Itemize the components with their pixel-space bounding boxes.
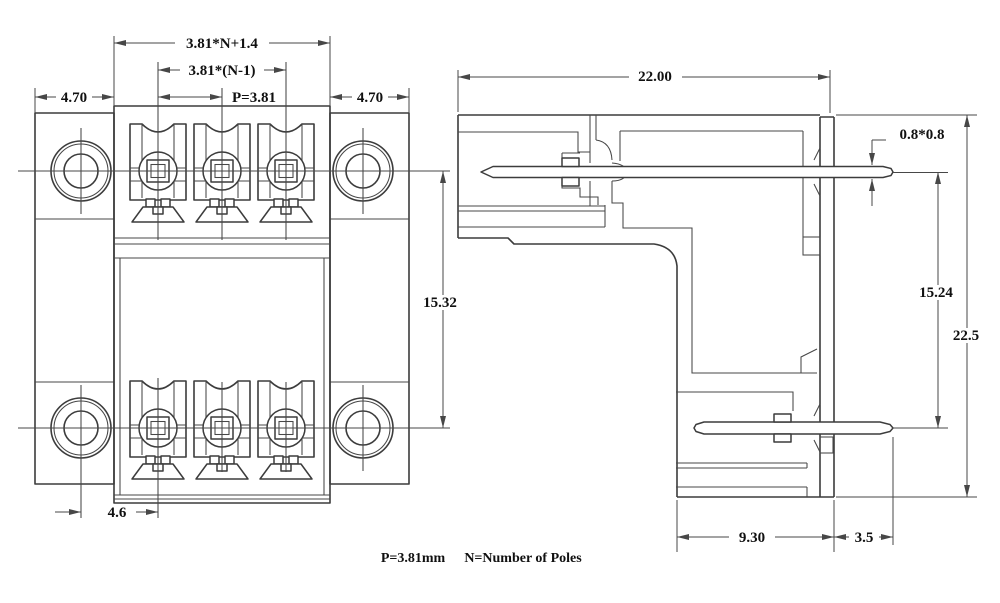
pin-clip-bottom-lower [774,434,791,442]
dim-height: 22.5 [953,328,979,344]
dim-row-spacing: 15.32 [423,295,457,311]
dim-pin-row-spacing: 15.24 [919,285,953,301]
dim-flange-left: 4.70 [61,90,87,106]
dim-total-width: 3.81*N+1.4 [186,36,258,52]
pin-top [481,167,893,178]
dim-pitch: P=3.81 [232,90,276,106]
footnote: P=3.81mm N=Number of Poles [381,551,582,566]
dim-body-depth: 9.30 [739,530,765,546]
note-poles: N=Number of Poles [464,551,582,566]
dim-depth: 22.00 [638,69,672,85]
dimension-labels: 3.81*N+1.4 3.81*(N-1) P=3.81 4.70 4.70 1… [56,36,987,546]
front-centerlines [18,62,450,518]
pin-clip-bottom-upper [774,414,791,422]
dim-inner-width: 3.81*(N-1) [188,63,255,79]
pin-bottom [694,422,893,434]
front-view-drawing [18,36,450,518]
pin-clip-top-upper [562,158,579,167]
pin-clip-top-lower [562,178,579,187]
dim-flange-right: 4.70 [357,90,383,106]
note-pitch: P=3.81mm [381,551,446,566]
technical-drawing: 3.81*N+1.4 3.81*(N-1) P=3.81 4.70 4.70 1… [0,0,1000,603]
dim-pin-protrusion: 3.5 [855,530,874,546]
dim-pin-section: 0.8*0.8 [900,127,945,143]
drawing-page: 3.81*N+1.4 3.81*(N-1) P=3.81 4.70 4.70 1… [0,0,1000,603]
dim-hole-to-pole: 4.6 [108,505,127,521]
